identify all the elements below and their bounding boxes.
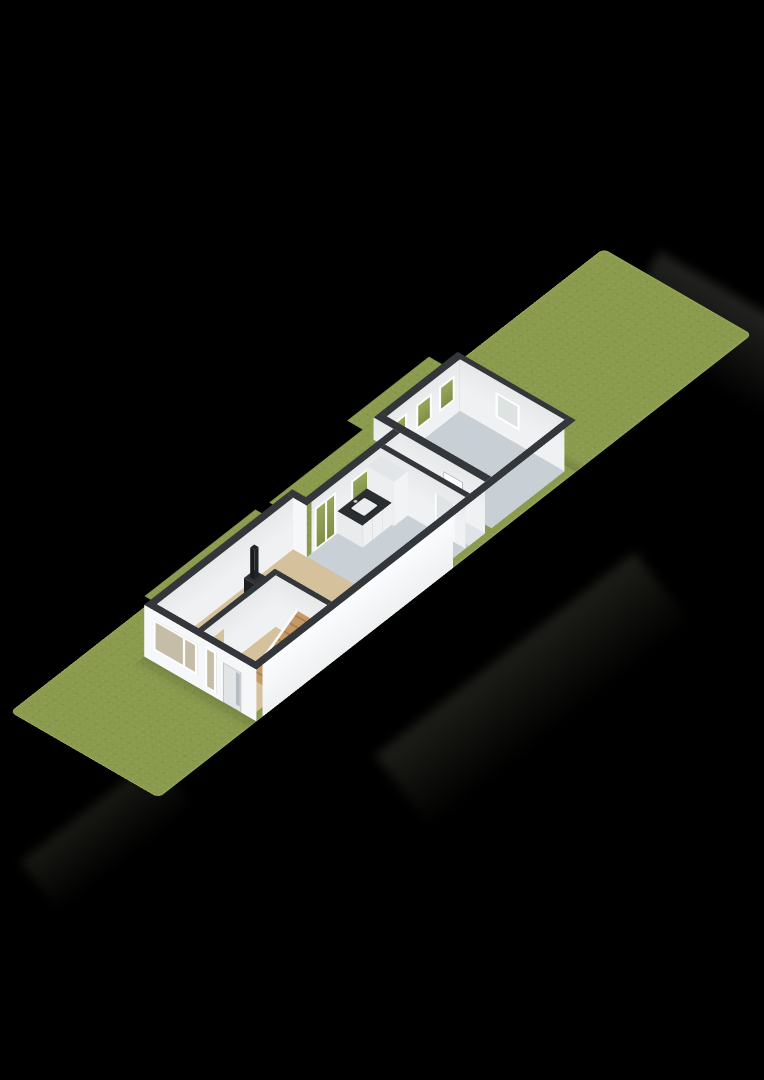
stove-flue-front [255, 547, 259, 580]
rear-side-window-2 [416, 393, 432, 430]
shadow-band-bottom-left [20, 757, 209, 933]
shadow-band-lower-right [375, 552, 715, 858]
rear-side-window-3 [439, 375, 455, 412]
front-door-sidelight [236, 672, 240, 707]
front-large-window-mullion [183, 638, 185, 666]
rear-end-window [496, 392, 520, 431]
page-background: { "scene": { "type": "3d-floorplan-isome… [0, 0, 764, 1080]
front-tall-window [205, 646, 216, 694]
french-doors-center-stile [325, 501, 327, 541]
